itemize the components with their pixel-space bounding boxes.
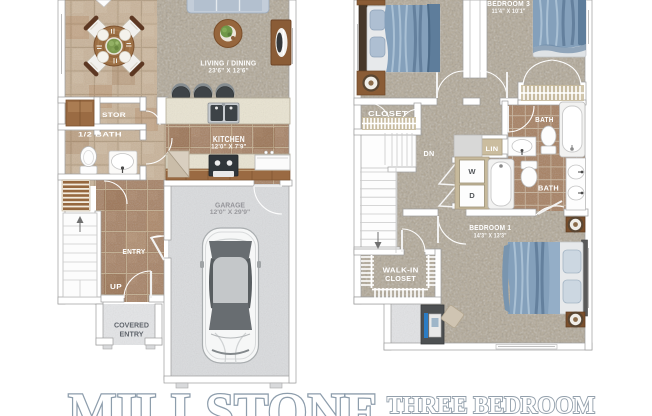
svg-text:ENTRY: ENTRY (120, 332, 144, 339)
svg-text:LIVING / DINING: LIVING / DINING (200, 58, 256, 67)
svg-text:1/2 BATH: 1/2 BATH (78, 132, 122, 139)
svg-text:BEDROOM 3: BEDROOM 3 (487, 1, 530, 8)
svg-text:GARAGE: GARAGE (215, 201, 245, 210)
svg-text:BATH: BATH (535, 115, 554, 124)
svg-text:LIN: LIN (486, 146, 499, 153)
svg-text:THREE BEDROOM: THREE BEDROOM (387, 393, 595, 416)
svg-text:COVERED: COVERED (114, 323, 149, 330)
svg-text:CLOSET: CLOSET (368, 109, 408, 118)
svg-text:BEDROOM 1: BEDROOM 1 (469, 223, 511, 232)
svg-text:23'6" X 12'6": 23'6" X 12'6" (208, 67, 249, 74)
svg-text:KITCHEN: KITCHEN (213, 135, 245, 144)
svg-text:BATH: BATH (538, 184, 559, 193)
svg-text:W: W (468, 167, 476, 176)
svg-text:ENTRY: ENTRY (123, 247, 146, 256)
svg-text:11'4" X 10'1": 11'4" X 10'1" (492, 8, 526, 15)
svg-text:12'0" X 29'9": 12'0" X 29'9" (210, 210, 251, 216)
svg-text:MILLSTONE: MILLSTONE (68, 382, 379, 416)
svg-text:CLOSET: CLOSET (385, 276, 416, 283)
svg-text:DN: DN (424, 149, 435, 158)
svg-text:14'3" X 13'3": 14'3" X 13'3" (474, 233, 507, 240)
svg-text:12'0" X 7'9": 12'0" X 7'9" (211, 144, 247, 151)
svg-text:UP: UP (110, 282, 122, 291)
svg-text:WALK-IN: WALK-IN (383, 267, 419, 274)
svg-text:D: D (469, 191, 475, 200)
svg-text:STOR: STOR (102, 112, 126, 119)
